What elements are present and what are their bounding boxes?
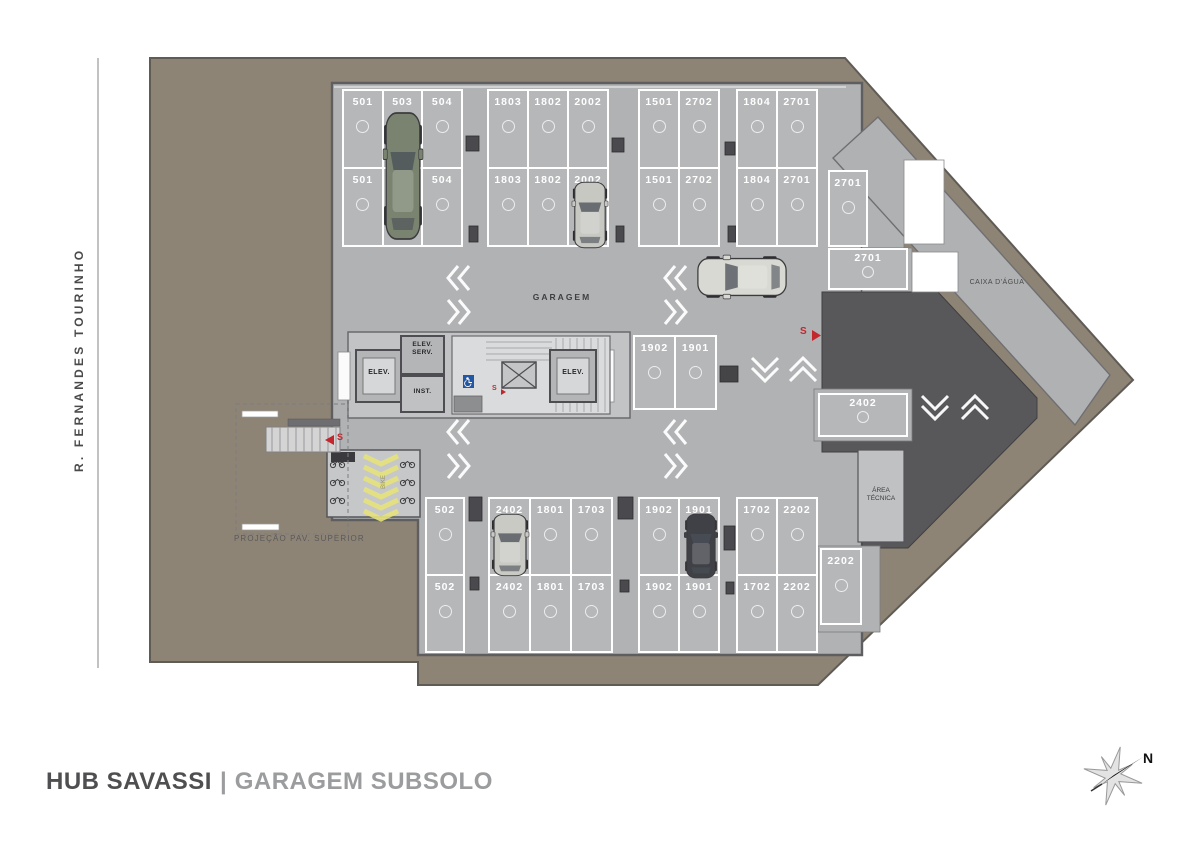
parking-stall-1804: 1804 <box>738 91 776 167</box>
stall-number: 2702 <box>685 174 712 186</box>
stall-number: 2702 <box>685 96 712 108</box>
stall-circle-marker <box>693 198 706 211</box>
stall-circle-marker <box>648 366 661 379</box>
stall-number: 502 <box>435 504 456 516</box>
stall-number: 504 <box>432 174 453 186</box>
parking-group-top-c: 1501270215012702 <box>638 89 720 247</box>
stall-number: 2202 <box>783 581 810 593</box>
floorplan-canvas: 5015035045015035041803180220021803180220… <box>0 0 1200 847</box>
parking-stall-2002: 2002 <box>569 91 607 167</box>
stall-number: 1802 <box>534 96 561 108</box>
stall-number: 2202 <box>783 504 810 516</box>
parking-stall-2402: 2402 <box>490 576 529 651</box>
stall-number: 1804 <box>743 174 770 186</box>
parking-stall-2702: 2702 <box>680 169 718 245</box>
stall-circle-marker <box>439 528 452 541</box>
stall-circle-marker <box>542 198 555 211</box>
parking-stall-502: 502 <box>427 499 463 574</box>
stall-number: 1703 <box>578 504 605 516</box>
stall-circle-marker <box>503 605 516 618</box>
parking-group-mid-a: 19021901 <box>633 335 717 410</box>
parking-stall-1501: 1501 <box>640 169 678 245</box>
parking-stall-1902: 1902 <box>635 337 674 408</box>
stall-number: 2701 <box>783 96 810 108</box>
stall-number: 1901 <box>682 342 709 354</box>
stall-circle-marker <box>751 198 764 211</box>
stall-circle-marker <box>396 120 409 133</box>
stall-circle-marker <box>585 605 598 618</box>
stall-number: 2202 <box>827 555 854 567</box>
parking-stall-1802: 1802 <box>529 91 567 167</box>
parking-stall-1702: 1702 <box>738 499 776 574</box>
parking-stall-504: 504 <box>423 91 461 167</box>
parking-group-right-2402: 2402 <box>818 393 908 437</box>
parking-stall-1902: 1902 <box>640 576 678 651</box>
parking-stall-503: 503 <box>384 169 422 245</box>
stall-circle-marker <box>503 528 516 541</box>
stall-number: 502 <box>435 581 456 593</box>
parking-stall-2402: 2402 <box>490 499 529 574</box>
stall-number: 2002 <box>574 96 601 108</box>
parking-group-right-2701-horizontal: 2701 <box>828 248 908 290</box>
parking-stall-1703: 1703 <box>572 576 611 651</box>
stall-circle-marker <box>693 528 706 541</box>
stall-number: 1501 <box>645 174 672 186</box>
stall-circle-marker <box>791 528 804 541</box>
stall-circle-marker <box>436 198 449 211</box>
parking-stall-2701: 2701 <box>778 169 816 245</box>
stall-circle-marker <box>751 605 764 618</box>
stall-number: 1501 <box>645 96 672 108</box>
parking-stall-2702: 2702 <box>680 91 718 167</box>
parking-group-bottom-a: 240218011703240218011703 <box>488 497 613 653</box>
parking-stall-2202: 2202 <box>778 499 816 574</box>
stall-number: 1803 <box>494 96 521 108</box>
stall-circle-marker <box>582 198 595 211</box>
stall-number: 503 <box>392 174 413 186</box>
stall-number: 1901 <box>685 581 712 593</box>
parking-stall-2402: 2402 <box>820 395 906 435</box>
parking-stall-2202: 2202 <box>822 550 860 623</box>
stall-number: 1803 <box>494 174 521 186</box>
stall-circle-marker <box>436 120 449 133</box>
stall-circle-marker <box>653 528 666 541</box>
stall-number: 1802 <box>534 174 561 186</box>
stall-number: 504 <box>432 96 453 108</box>
parking-stall-1901: 1901 <box>680 576 718 651</box>
stall-circle-marker <box>791 605 804 618</box>
stall-circle-marker <box>356 120 369 133</box>
parking-group-top-b: 180318022002180318022002 <box>487 89 609 247</box>
parking-stall-1703: 1703 <box>572 499 611 574</box>
stall-circle-marker <box>396 198 409 211</box>
stall-circle-marker <box>791 198 804 211</box>
stall-circle-marker <box>502 120 515 133</box>
stall-number: 2402 <box>849 397 876 409</box>
stall-number: 1702 <box>743 504 770 516</box>
stall-circle-marker <box>544 528 557 541</box>
stall-circle-marker <box>862 266 874 278</box>
parking-stall-2202: 2202 <box>778 576 816 651</box>
stall-circle-marker <box>693 120 706 133</box>
parking-stall-2701: 2701 <box>830 172 866 245</box>
stall-circle-marker <box>653 120 666 133</box>
parking-stall-504: 504 <box>423 169 461 245</box>
parking-stall-503: 503 <box>384 91 422 167</box>
parking-stall-2701: 2701 <box>830 250 906 288</box>
parking-group-bottom-c: 1702220217022202 <box>736 497 818 653</box>
stall-circle-marker <box>542 120 555 133</box>
parking-stall-1902: 1902 <box>640 499 678 574</box>
parking-group-top-d: 1804270118042701 <box>736 89 818 247</box>
stall-number: 501 <box>353 96 374 108</box>
stall-number: 1801 <box>537 581 564 593</box>
parking-stall-1901: 1901 <box>676 337 715 408</box>
stall-number: 2701 <box>783 174 810 186</box>
stall-number: 2402 <box>496 581 523 593</box>
stall-number: 1801 <box>537 504 564 516</box>
parking-stall-1702: 1702 <box>738 576 776 651</box>
parking-stall-1803: 1803 <box>489 169 527 245</box>
stall-number: 1804 <box>743 96 770 108</box>
stall-number: 1902 <box>645 581 672 593</box>
stall-number: 1902 <box>641 342 668 354</box>
parking-stall-1804: 1804 <box>738 169 776 245</box>
stall-circle-marker <box>791 120 804 133</box>
parking-stall-1803: 1803 <box>489 91 527 167</box>
stall-circle-marker <box>751 120 764 133</box>
stall-circle-marker <box>653 605 666 618</box>
stall-circle-marker <box>835 579 848 592</box>
parking-stall-2002: 2002 <box>569 169 607 245</box>
stall-number: 501 <box>353 174 374 186</box>
parking-stall-501: 501 <box>344 91 382 167</box>
stall-circle-marker <box>751 528 764 541</box>
parking-stall-layer: 5015035045015035041803180220021803180220… <box>0 0 1200 847</box>
parking-group-top-a: 501503504501503504 <box>342 89 463 247</box>
stall-number: 1702 <box>743 581 770 593</box>
stall-circle-marker <box>857 411 869 423</box>
parking-stall-1801: 1801 <box>531 576 570 651</box>
stall-circle-marker <box>439 605 452 618</box>
stall-number: 2701 <box>834 177 861 189</box>
stall-circle-marker <box>653 198 666 211</box>
stall-number: 2402 <box>496 504 523 516</box>
stall-circle-marker <box>544 605 557 618</box>
stall-circle-marker <box>582 120 595 133</box>
parking-stall-2701: 2701 <box>778 91 816 167</box>
stall-circle-marker <box>502 198 515 211</box>
stall-circle-marker <box>356 198 369 211</box>
stall-circle-marker <box>689 366 702 379</box>
stall-number: 2701 <box>854 252 881 264</box>
parking-stall-1801: 1801 <box>531 499 570 574</box>
stall-number: 1901 <box>685 504 712 516</box>
stall-circle-marker <box>693 605 706 618</box>
parking-stall-1802: 1802 <box>529 169 567 245</box>
parking-group-bottom-b: 1902190119021901 <box>638 497 720 653</box>
parking-group-corner-2202: 2202 <box>820 548 862 625</box>
parking-stall-502: 502 <box>427 576 463 651</box>
parking-group-bottom-502: 502502 <box>425 497 465 653</box>
parking-stall-501: 501 <box>344 169 382 245</box>
parking-stall-1901: 1901 <box>680 499 718 574</box>
parking-group-right-2701-vertical: 2701 <box>828 170 868 247</box>
stall-number: 1703 <box>578 581 605 593</box>
stall-number: 1902 <box>645 504 672 516</box>
parking-stall-1501: 1501 <box>640 91 678 167</box>
stall-circle-marker <box>585 528 598 541</box>
stall-number: 2002 <box>574 174 601 186</box>
stall-number: 503 <box>392 96 413 108</box>
stall-circle-marker <box>842 201 855 214</box>
